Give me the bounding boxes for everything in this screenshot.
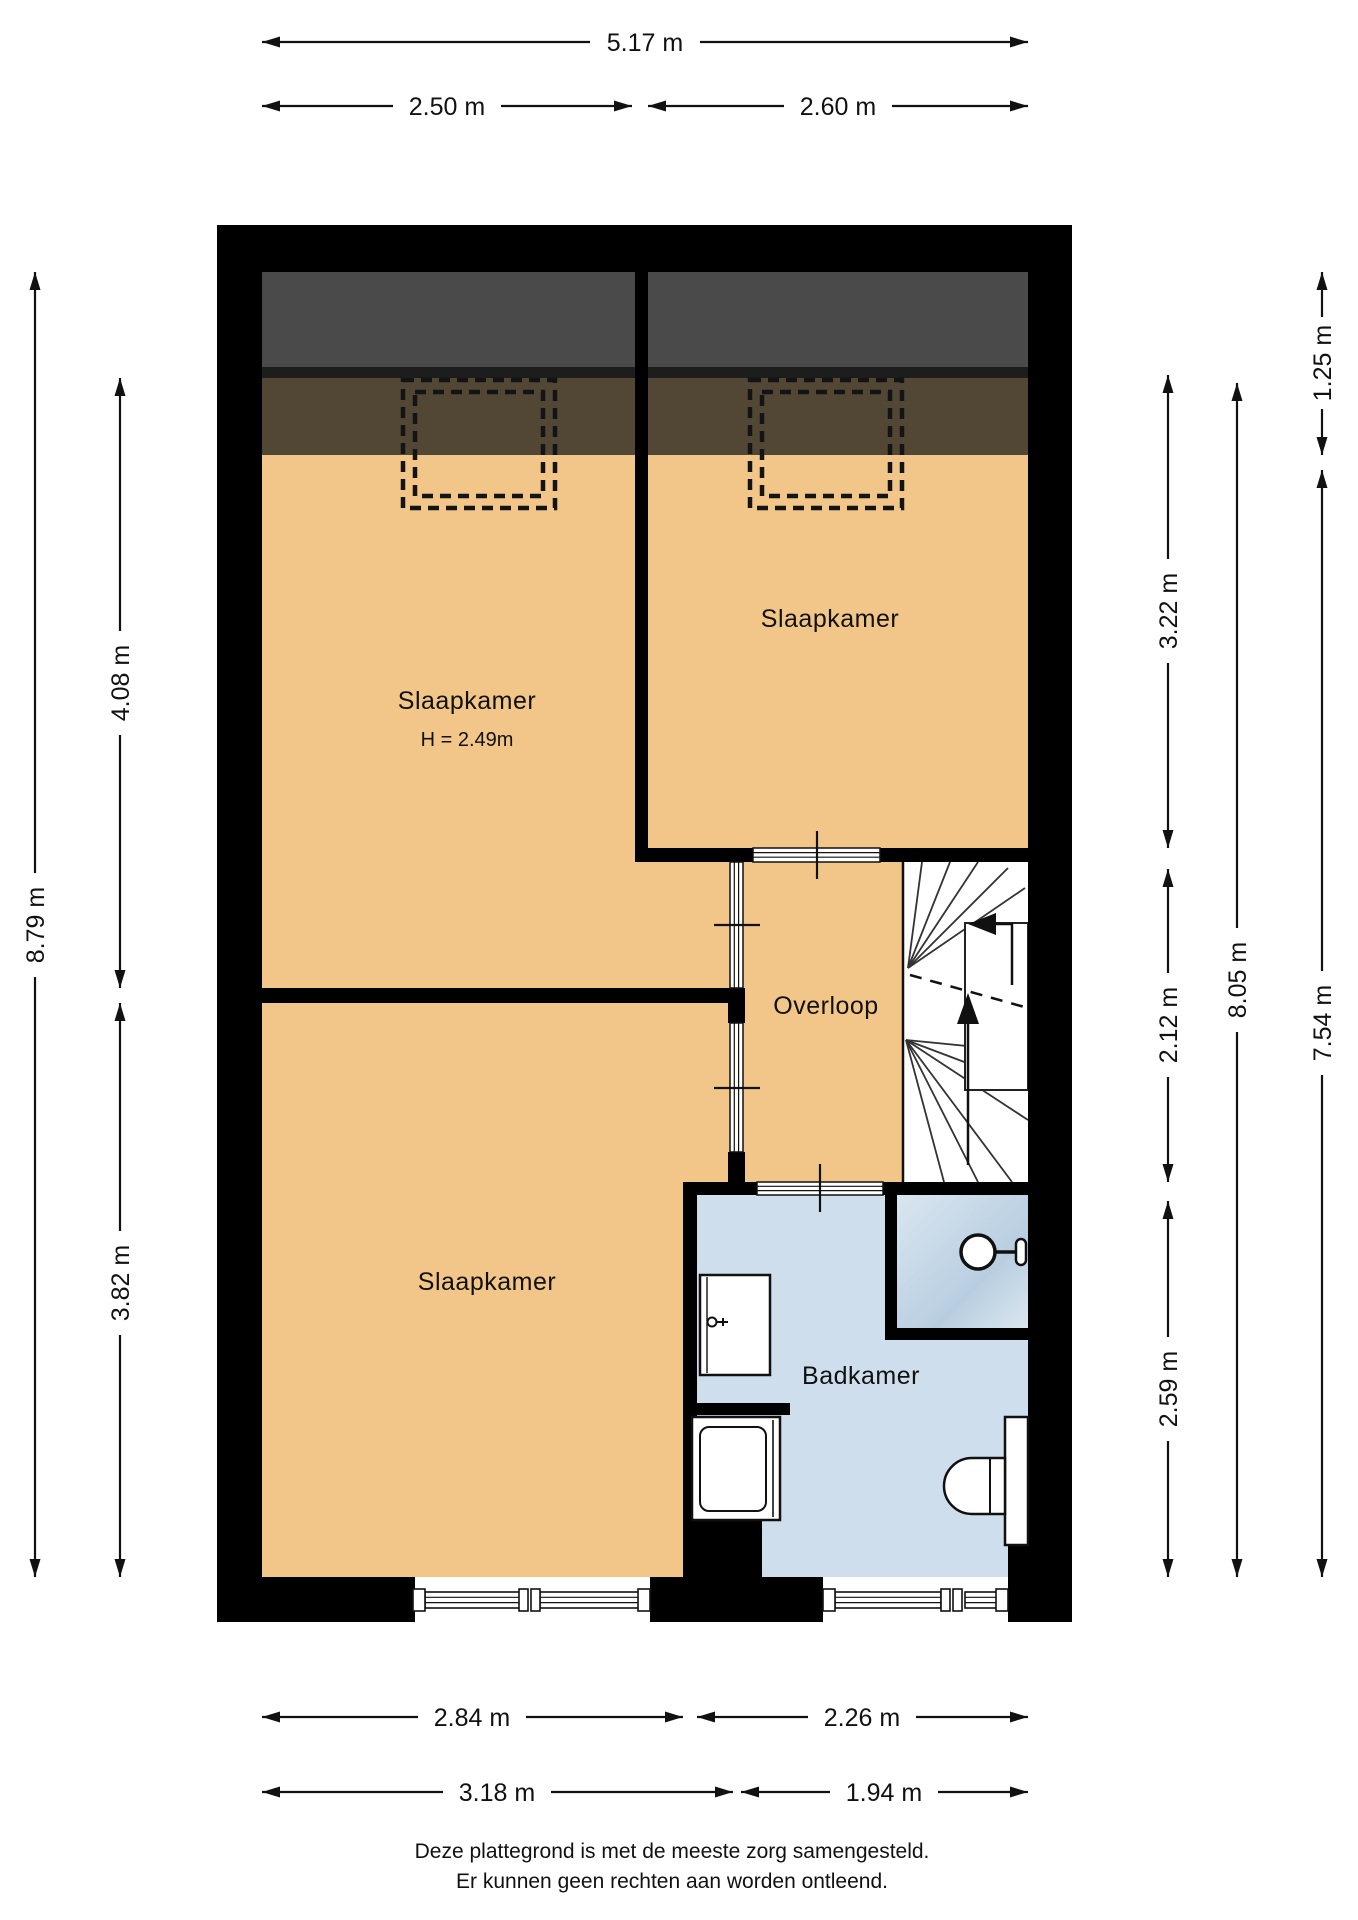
- dimensions-right: [1168, 272, 1322, 1577]
- dim-width-right: 2.60 m: [800, 93, 876, 121]
- dim-bottom-left2: 3.18 m: [459, 1779, 535, 1807]
- disclaimer: Deze plattegrond is met de meeste zorg s…: [415, 1840, 930, 1893]
- dim-left-bottom: 3.82 m: [107, 1245, 135, 1321]
- room-height-note: H = 2.49m: [421, 729, 514, 751]
- dim-bottom-bedroom: 2.84 m: [434, 1704, 510, 1732]
- dim-right-roof: 1.25 m: [1309, 325, 1337, 401]
- wall-bedroom2-south-right: [880, 848, 1028, 862]
- dim-right-inner-total: 8.05 m: [1224, 942, 1252, 1018]
- dim-bottom-bathroom: 2.26 m: [824, 1704, 900, 1732]
- wall-stub-landing-1: [728, 988, 745, 1023]
- window-bedroom-bottom: [413, 1589, 650, 1611]
- wall-stub-bathroom-sw: [683, 1520, 762, 1577]
- dim-left-top: 4.08 m: [107, 645, 135, 721]
- dim-right-bottom: 2.59 m: [1155, 1351, 1183, 1427]
- wall-exterior-top: [217, 225, 1072, 272]
- wall-stub-appliances: [687, 1403, 790, 1415]
- dim-width-left: 2.50 m: [409, 93, 485, 121]
- wall-exterior-left: [217, 225, 262, 1622]
- shower-corner: [897, 1195, 1028, 1328]
- window-bathroom: [823, 1589, 1008, 1611]
- disclaimer-line-1: Deze plattegrond is met de meeste zorg s…: [415, 1840, 930, 1863]
- wall-exterior-right: [1028, 225, 1072, 1622]
- wall-bottom-left-segment: [217, 1577, 415, 1622]
- wall-left-bedrooms-divider: [262, 988, 730, 1003]
- wall-bedroom2-south-left: [635, 848, 753, 862]
- dim-width-total: 5.17 m: [607, 29, 683, 57]
- dim-bottom-right2: 1.94 m: [846, 1779, 922, 1807]
- room-label-bedroom-bottom-left: Slaapkamer: [418, 1268, 556, 1296]
- dim-left-total: 8.79 m: [22, 887, 50, 963]
- wall-stub-bottom-right: [1008, 1545, 1028, 1579]
- wall-bottom-right-segment: [1008, 1577, 1072, 1622]
- washing-machine-icon: [692, 1417, 780, 1520]
- appliance-icon: [700, 1275, 770, 1375]
- floorplan-page: Slaapkamer H = 2.49m Slaapkamer Slaapkam…: [0, 0, 1358, 1920]
- dim-right-mid: 2.12 m: [1155, 987, 1183, 1063]
- room-label-landing: Overloop: [773, 992, 878, 1020]
- floorplan-drawing: Slaapkamer H = 2.49m Slaapkamer Slaapkam…: [0, 0, 1358, 1920]
- wall-shower-south: [885, 1328, 1028, 1340]
- wall-bathroom-north-left: [683, 1182, 757, 1195]
- room-label-bedroom-top-left: Slaapkamer: [398, 687, 536, 715]
- wall-bottom-center-pier: [650, 1577, 823, 1622]
- room-label-bedroom-top-right: Slaapkamer: [761, 605, 899, 633]
- wall-bathroom-north-right: [883, 1182, 1028, 1195]
- room-label-bathroom: Badkamer: [802, 1362, 920, 1390]
- wall-shower-west: [885, 1195, 897, 1340]
- dim-right-top: 3.22 m: [1155, 573, 1183, 649]
- wall-bedroom-divider: [635, 272, 648, 862]
- dim-right-outer: 7.54 m: [1309, 985, 1337, 1061]
- disclaimer-line-2: Er kunnen geen rechten aan worden ontlee…: [456, 1870, 888, 1893]
